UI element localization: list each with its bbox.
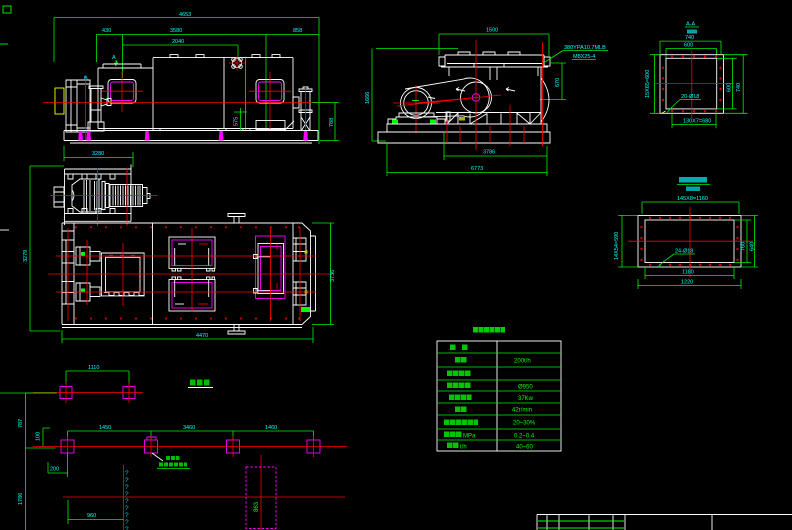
svg-text:37Kw: 37Kw	[518, 396, 534, 402]
svg-text:?: ?	[125, 484, 129, 491]
svg-text:430: 430	[102, 28, 111, 34]
svg-text:3279: 3279	[23, 250, 29, 262]
svg-text:Ø950: Ø950	[518, 385, 533, 391]
svg-text:?: ?	[125, 512, 129, 519]
svg-text:A: A	[112, 55, 116, 61]
svg-text:200: 200	[50, 467, 59, 473]
svg-text:200t/h: 200t/h	[514, 359, 531, 365]
svg-text:15X65=600: 15X65=600	[645, 70, 651, 98]
svg-text:14X54=590: 14X54=590	[614, 232, 620, 260]
svg-text:788: 788	[329, 118, 335, 127]
svg-text:?: ?	[125, 519, 129, 526]
svg-text:?: ?	[125, 505, 129, 512]
svg-text:2040: 2040	[172, 39, 184, 45]
svg-text:1666: 1666	[365, 92, 371, 104]
svg-text:3460: 3460	[183, 425, 195, 431]
svg-text:575: 575	[234, 117, 240, 126]
svg-text:?: ?	[125, 498, 129, 505]
svg-text:863: 863	[254, 501, 260, 512]
svg-text:858: 858	[293, 28, 302, 34]
svg-text:1180: 1180	[682, 270, 694, 276]
svg-text:M8X25-4: M8X25-4	[573, 54, 595, 60]
svg-text:640: 640	[750, 242, 756, 251]
svg-text:4470: 4470	[196, 333, 208, 339]
svg-text:740: 740	[685, 35, 694, 41]
svg-text:145X8=1160: 145X8=1160	[677, 196, 708, 202]
svg-text:1450: 1450	[99, 425, 111, 431]
svg-text:20~30%: 20~30%	[513, 421, 536, 427]
svg-text:4653: 4653	[179, 12, 191, 18]
svg-text:1786: 1786	[18, 493, 24, 505]
svg-text:960: 960	[87, 513, 96, 519]
svg-text:?: ?	[125, 477, 129, 484]
svg-text:670: 670	[555, 78, 561, 87]
svg-text:3786: 3786	[483, 150, 495, 156]
svg-text:380YPA10.7MLB: 380YPA10.7MLB	[564, 45, 606, 51]
svg-text:787: 787	[18, 419, 24, 428]
svg-text:600: 600	[727, 83, 733, 92]
svg-text:0.2~0.4: 0.2~0.4	[514, 434, 535, 440]
svg-text:1500: 1500	[486, 28, 498, 34]
svg-text:6773: 6773	[471, 166, 483, 172]
svg-text:600: 600	[684, 43, 693, 49]
svg-text:B: B	[84, 76, 88, 82]
svg-text:t/h: t/h	[460, 445, 467, 451]
svg-text:MPa: MPa	[463, 434, 476, 440]
svg-text:3580: 3580	[170, 28, 182, 34]
svg-text:1220: 1220	[681, 280, 693, 286]
svg-text:1460: 1460	[265, 425, 277, 431]
svg-text:1110: 1110	[88, 365, 99, 371]
svg-text:740: 740	[736, 83, 742, 92]
svg-text:130X7=680: 130X7=680	[683, 119, 711, 125]
svg-text:?: ?	[125, 526, 129, 530]
svg-text:40~60: 40~60	[516, 445, 534, 451]
svg-text:?: ?	[125, 470, 129, 477]
svg-text:3280: 3280	[92, 151, 104, 157]
svg-text:3736: 3736	[330, 270, 336, 282]
svg-text:42r/min: 42r/min	[512, 408, 532, 414]
svg-text:760: 760	[741, 242, 747, 251]
svg-text:100: 100	[36, 432, 42, 441]
